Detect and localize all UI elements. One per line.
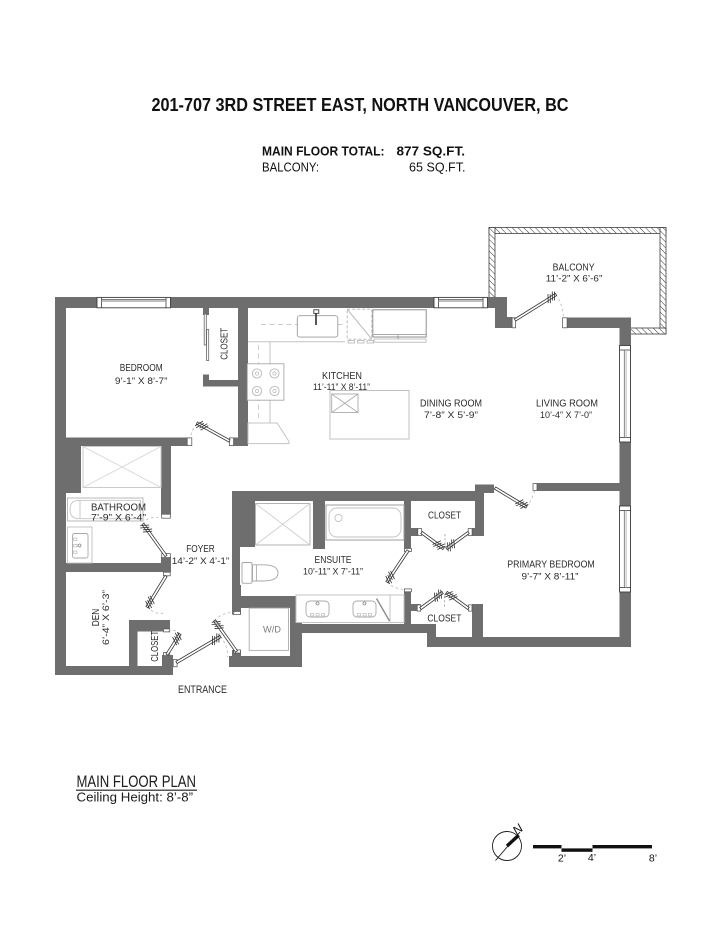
svg-text:BALCONY: BALCONY <box>553 262 595 273</box>
svg-text:6’-4” X 6’-3”: 6’-4” X 6’-3” <box>101 590 112 645</box>
svg-text:CLOSET: CLOSET <box>428 511 461 522</box>
svg-text:11’-2” X 6’-6”: 11’-2” X 6’-6” <box>546 274 603 285</box>
svg-text:7’-8” X 5’-9”: 7’-8” X 5’-9” <box>424 410 478 421</box>
svg-text:FOYER: FOYER <box>186 544 215 555</box>
svg-text:MAIN FLOOR PLAN: MAIN FLOOR PLAN <box>77 773 197 791</box>
svg-text:11’-11” X 8’-11”: 11’-11” X 8’-11” <box>313 382 370 393</box>
svg-text:2’: 2’ <box>558 853 566 865</box>
svg-text:14’-2” X 4’-1”: 14’-2” X 4’-1” <box>172 556 230 567</box>
svg-text:8’: 8’ <box>649 853 657 865</box>
svg-text:MAIN FLOOR TOTAL:: MAIN FLOOR TOTAL: <box>262 145 385 159</box>
svg-text:201-707 3RD STREET EAST, NORTH: 201-707 3RD STREET EAST, NORTH VANCOUVER… <box>152 94 569 115</box>
svg-text:PRIMARY BEDROOM: PRIMARY BEDROOM <box>507 560 595 571</box>
svg-text:4’: 4’ <box>588 852 596 864</box>
svg-text:LIVING ROOM: LIVING ROOM <box>536 399 598 410</box>
svg-text:BALCONY:: BALCONY: <box>262 161 319 175</box>
svg-text:877 SQ.FT.: 877 SQ.FT. <box>397 145 466 159</box>
svg-text:7’-9” X 6’-4”: 7’-9” X 6’-4” <box>91 513 146 524</box>
svg-text:BEDROOM: BEDROOM <box>120 363 163 374</box>
svg-text:9’-1” X 8’-7”: 9’-1” X 8’-7” <box>115 376 168 387</box>
svg-text:10’-4” X 7’-0”: 10’-4” X 7’-0” <box>540 410 592 421</box>
svg-text:DINING ROOM: DINING ROOM <box>420 399 482 410</box>
svg-text:CLOSET: CLOSET <box>220 328 231 360</box>
svg-text:ENSUITE: ENSUITE <box>315 555 352 566</box>
svg-text:W/D: W/D <box>263 625 281 636</box>
svg-text:CLOSET: CLOSET <box>427 614 461 625</box>
svg-text:ENTRANCE: ENTRANCE <box>178 684 227 696</box>
svg-text:9’-7” X 8’-11”: 9’-7” X 8’-11” <box>522 572 579 583</box>
svg-text:10’-11” X 7’-11”: 10’-11” X 7’-11” <box>303 567 363 578</box>
svg-text:Ceiling Height: 8’-8”: Ceiling Height: 8’-8” <box>77 791 194 805</box>
svg-text:65 SQ.FT.: 65 SQ.FT. <box>409 161 466 175</box>
svg-text:CLOSET: CLOSET <box>150 631 161 662</box>
svg-text:KITCHEN: KITCHEN <box>322 371 362 382</box>
